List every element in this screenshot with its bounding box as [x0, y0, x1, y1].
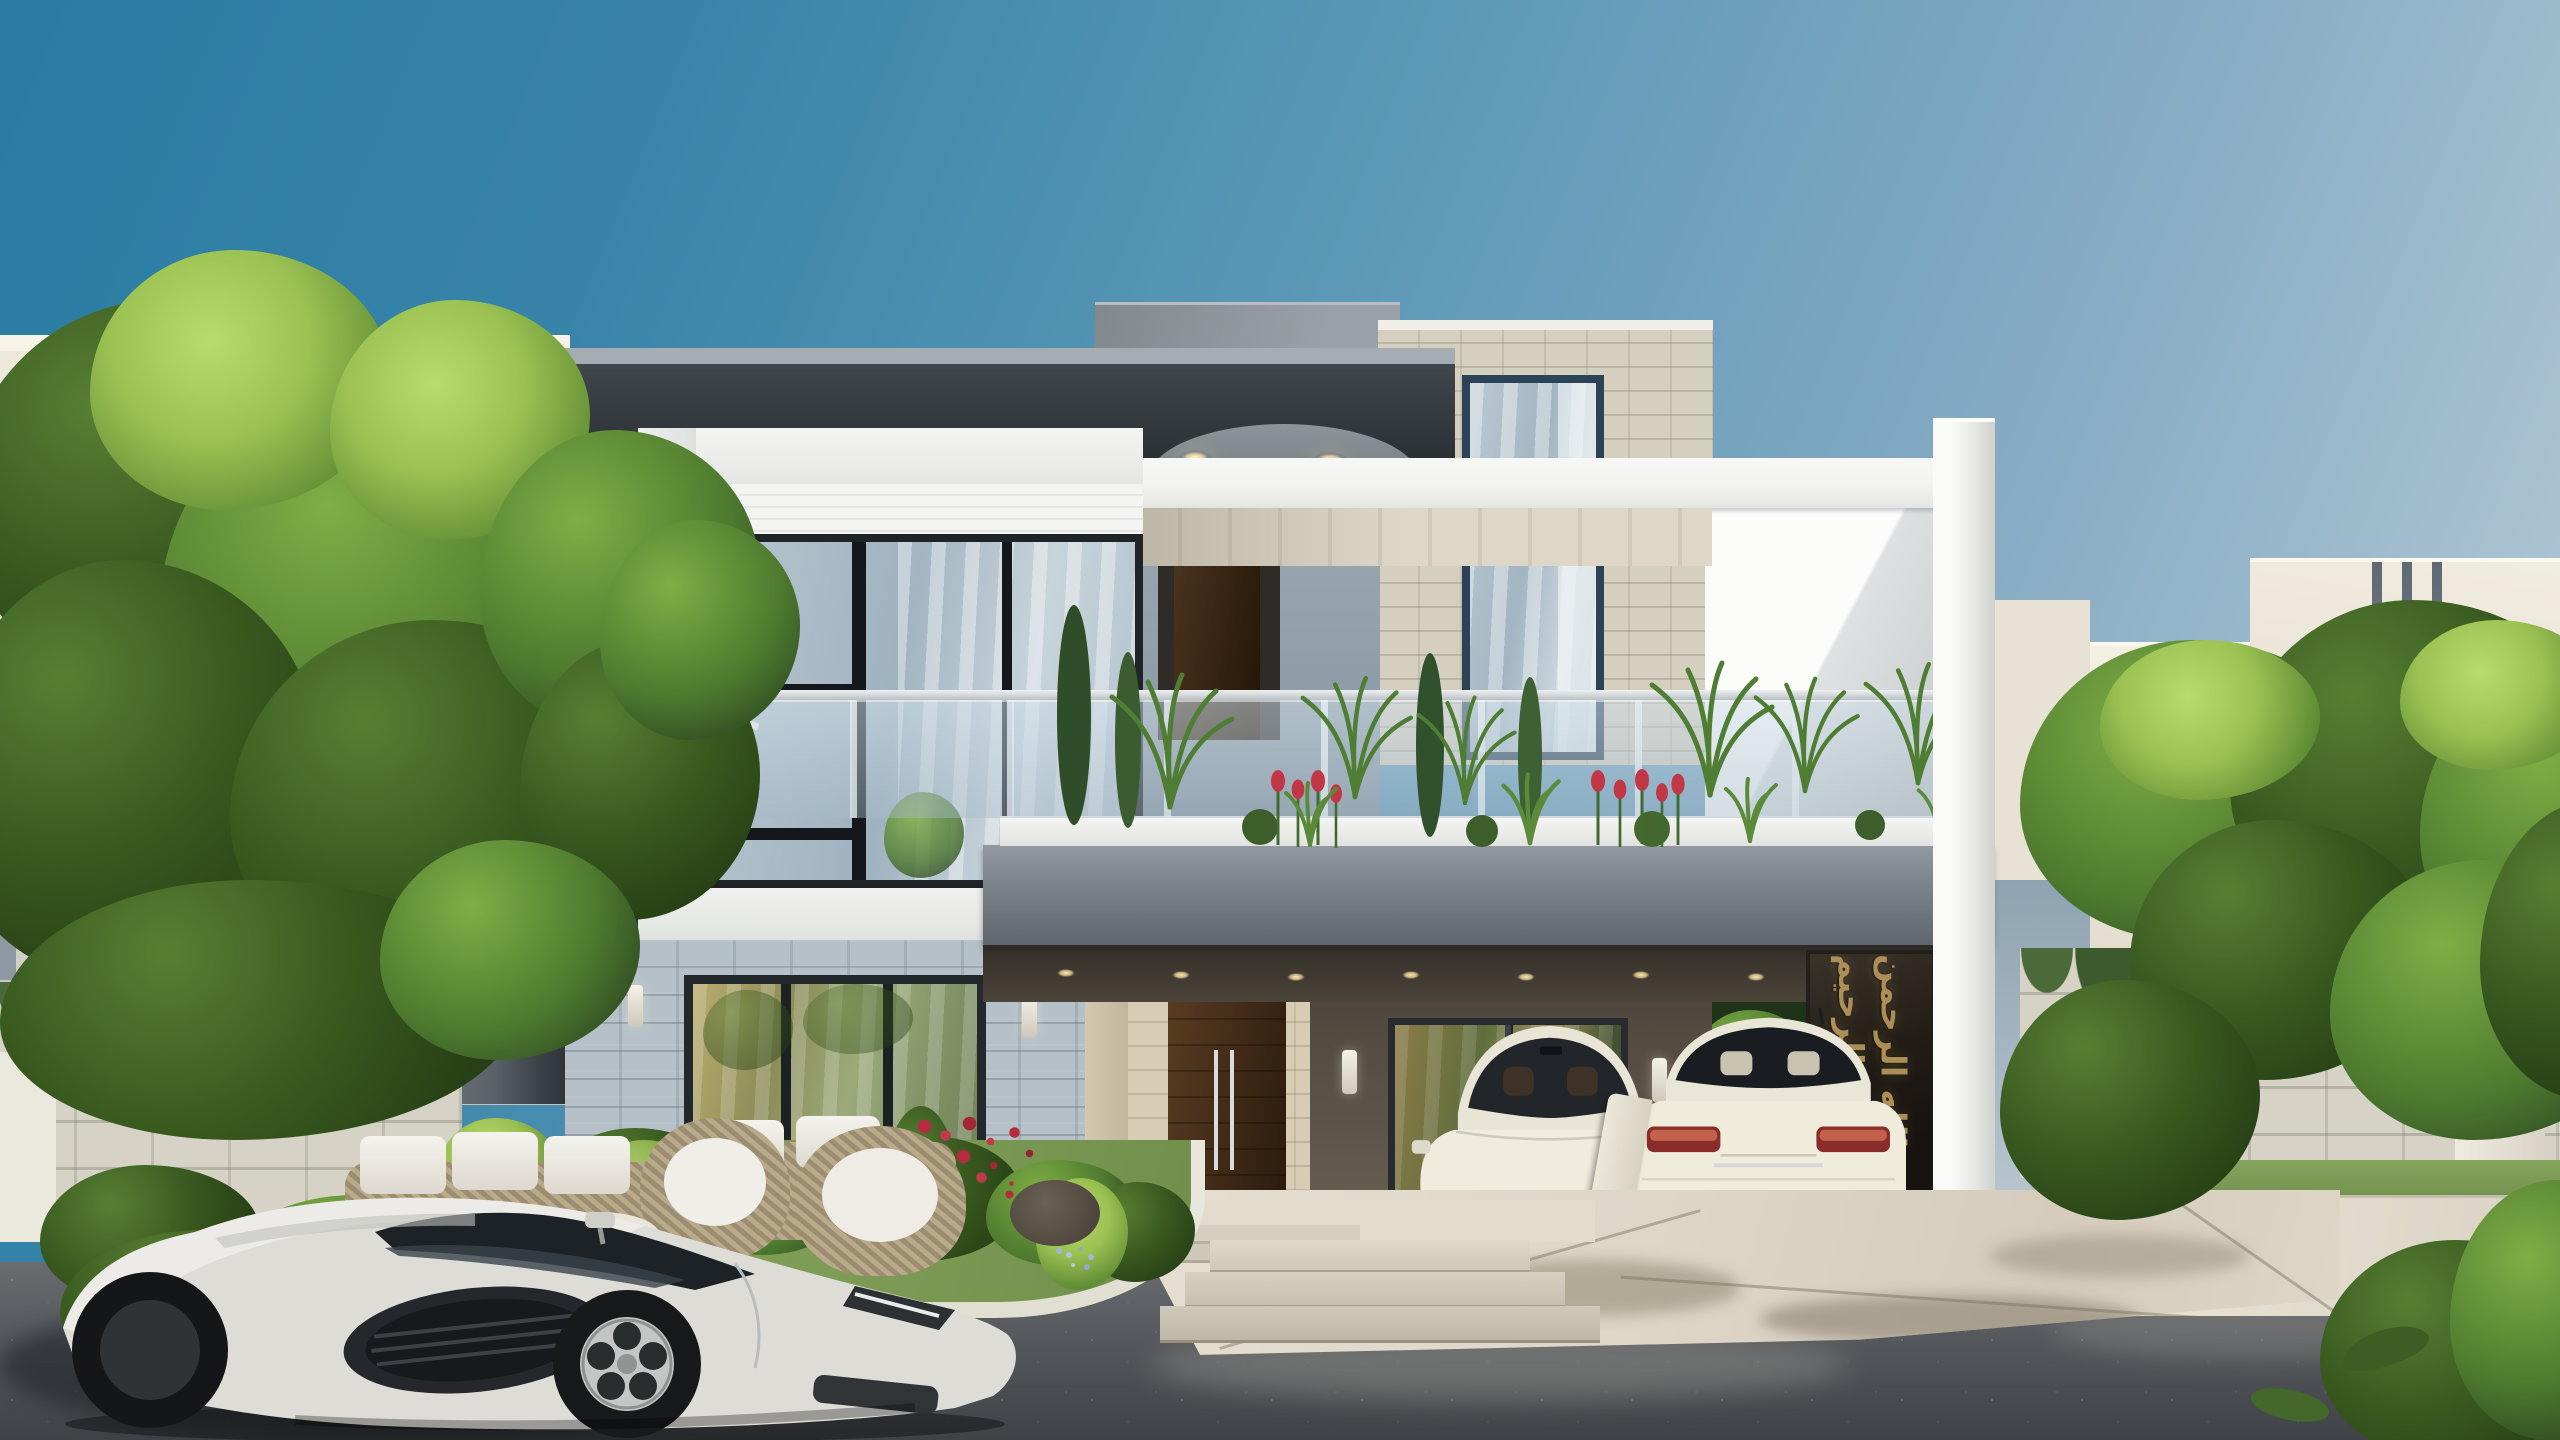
carport-sconce — [1342, 1050, 1357, 1094]
frame-coping — [435, 348, 1455, 364]
door-handle — [1230, 1050, 1234, 1170]
scene-villa-exterior: الله الرحمن الرحيم — [0, 0, 2560, 1440]
rear-wheel — [72, 1272, 228, 1428]
main-step — [1185, 1272, 1565, 1305]
wall-sconce — [628, 985, 643, 1027]
ceiling-light — [1400, 970, 1422, 980]
blue-flowers — [1056, 1248, 1062, 1254]
sports-car — [55, 1168, 1040, 1440]
main-step — [1210, 1240, 1530, 1270]
rose-cluster — [918, 1120, 932, 1134]
parapet-coping — [1378, 320, 1713, 330]
right-white-pier — [1933, 418, 1995, 1234]
white-roof-slab — [1032, 458, 1990, 508]
balcony-plants — [1010, 545, 1990, 850]
box-interior-ceiling — [696, 484, 1143, 534]
carport-fascia-slab — [983, 845, 1993, 945]
driveway-stain — [1990, 1235, 2250, 1277]
ceiling-light — [1285, 972, 1307, 982]
ceiling-light — [1515, 972, 1537, 982]
ceiling-light — [1170, 970, 1192, 980]
door-handle — [1214, 1050, 1218, 1170]
main-step — [1160, 1306, 1600, 1340]
front-wheel — [553, 1290, 701, 1438]
ceiling-light — [1055, 968, 1077, 978]
